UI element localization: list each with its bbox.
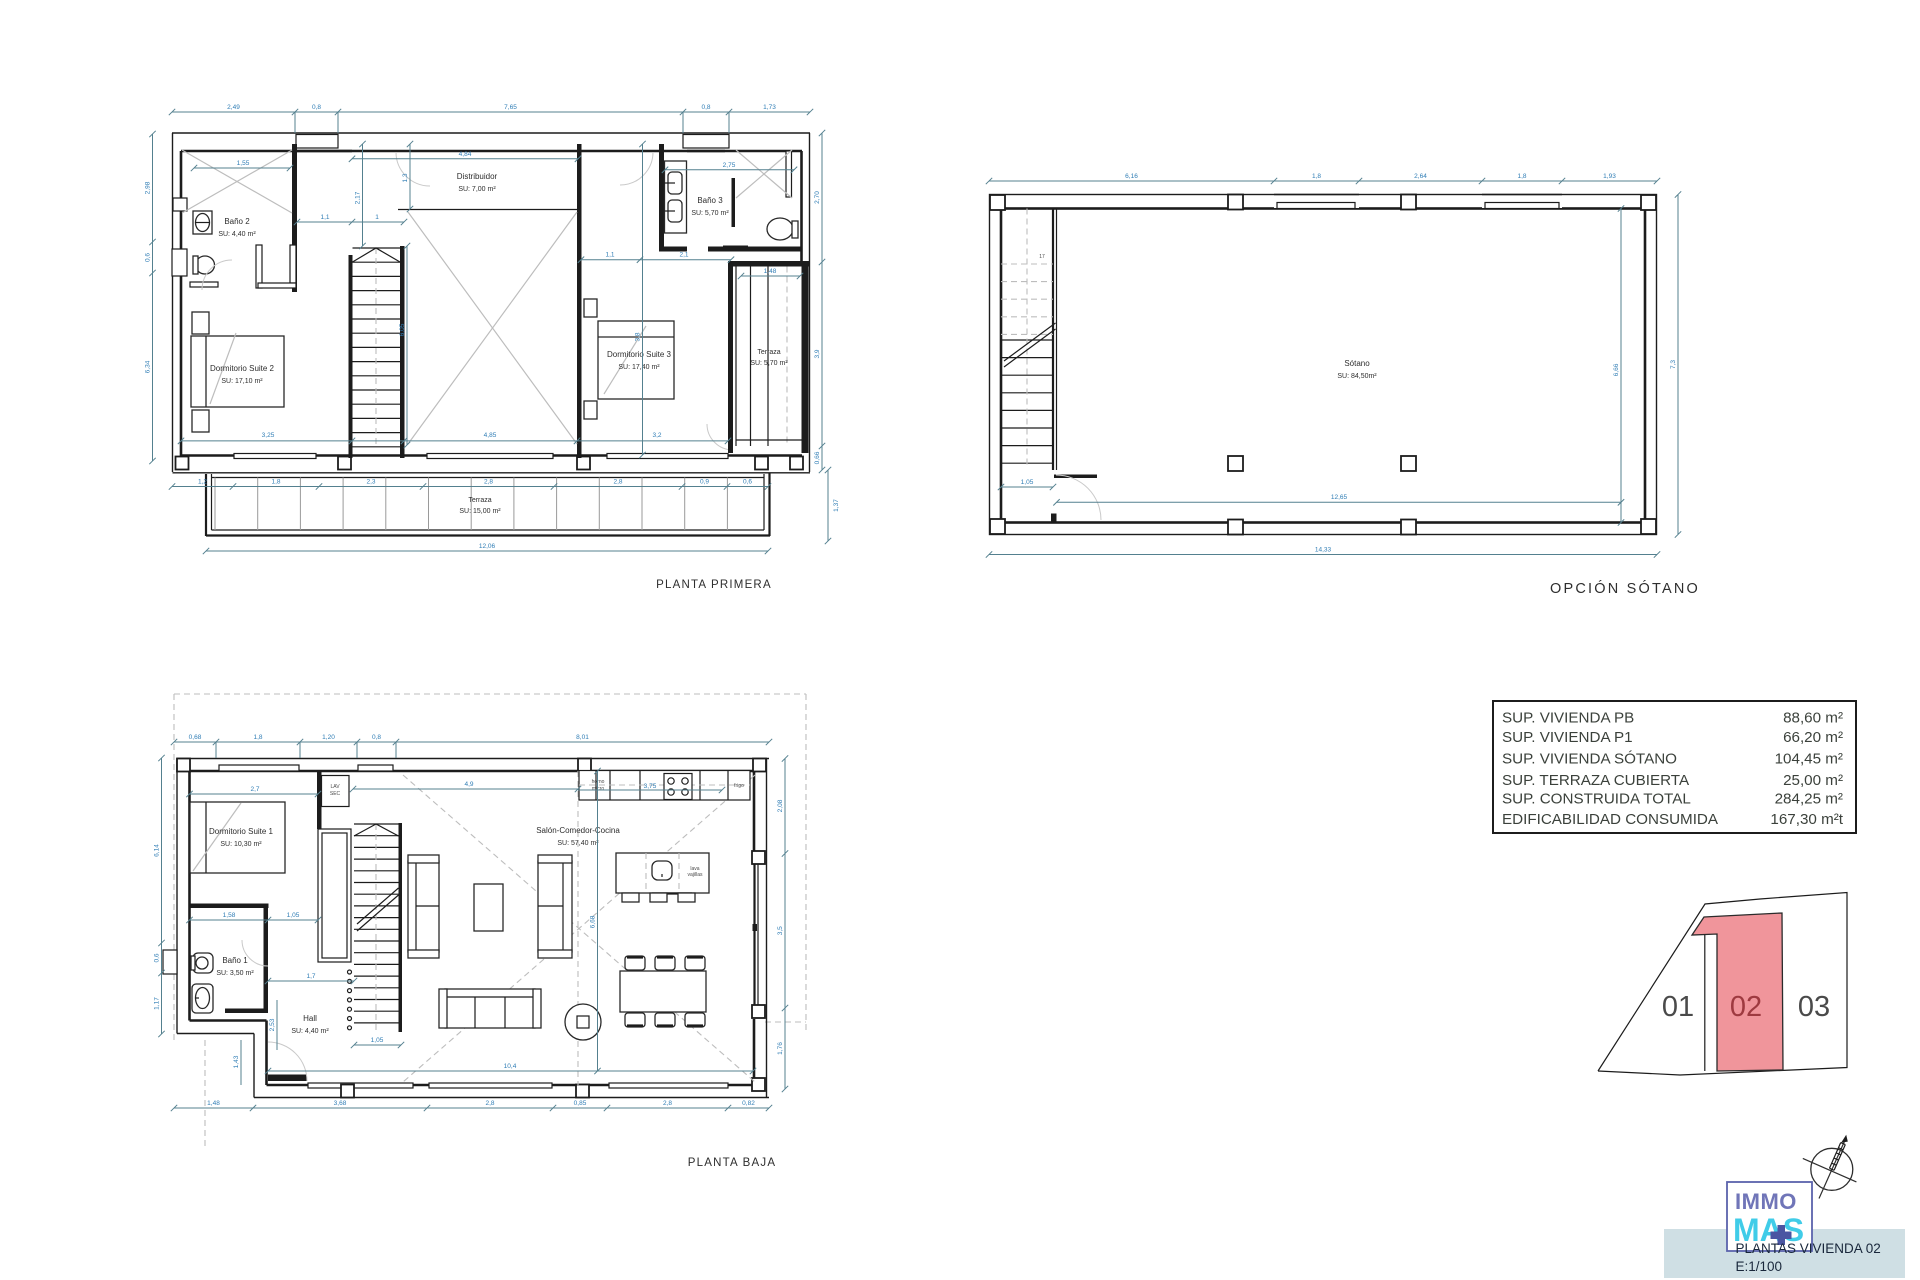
svg-text:3,68: 3,68 bbox=[334, 1100, 347, 1107]
svg-text:PLANTAS VIVIENDA 02: PLANTAS VIVIENDA 02 bbox=[1736, 1241, 1881, 1256]
svg-text:4,9: 4,9 bbox=[464, 781, 473, 788]
svg-text:6,14: 6,14 bbox=[154, 844, 161, 857]
svg-text:SU: 3,50 m²: SU: 3,50 m² bbox=[216, 970, 254, 977]
svg-text:Sótano: Sótano bbox=[1344, 359, 1370, 368]
svg-text:2,53: 2,53 bbox=[269, 1018, 276, 1031]
svg-text:Hall: Hall bbox=[303, 1014, 317, 1023]
svg-text:6,66: 6,66 bbox=[1613, 363, 1620, 376]
svg-text:66,20 m²: 66,20 m² bbox=[1783, 729, 1843, 746]
svg-text:vajillas: vajillas bbox=[687, 872, 703, 878]
svg-text:frigo: frigo bbox=[734, 783, 744, 789]
svg-text:1: 1 bbox=[375, 214, 379, 221]
svg-text:10,4: 10,4 bbox=[504, 1063, 517, 1070]
svg-text:3,9: 3,9 bbox=[814, 349, 821, 358]
svg-text:micro: micro bbox=[592, 786, 604, 792]
svg-text:SU: 84,50m²: SU: 84,50m² bbox=[1337, 373, 1377, 380]
svg-text:Dormitorio Suite 2: Dormitorio Suite 2 bbox=[210, 364, 275, 373]
svg-text:SU: 5,70 m²: SU: 5,70 m² bbox=[691, 210, 729, 217]
svg-text:1,7: 1,7 bbox=[306, 973, 315, 980]
svg-text:4,84: 4,84 bbox=[459, 151, 472, 158]
svg-text:12,06: 12,06 bbox=[479, 543, 496, 550]
svg-text:0,68: 0,68 bbox=[189, 734, 202, 741]
svg-text:2,7: 2,7 bbox=[250, 786, 259, 793]
svg-text:Distribuidor: Distribuidor bbox=[457, 172, 498, 181]
svg-text:17: 17 bbox=[1039, 254, 1045, 260]
svg-text:8,01: 8,01 bbox=[576, 734, 589, 741]
svg-text:12,65: 12,65 bbox=[1331, 494, 1348, 501]
svg-text:1,2: 1,2 bbox=[198, 479, 207, 486]
svg-text:6,05: 6,05 bbox=[399, 323, 406, 336]
svg-text:Dormitorio Suite 1: Dormitorio Suite 1 bbox=[209, 827, 274, 836]
svg-text:IMMO: IMMO bbox=[1735, 1189, 1797, 1214]
svg-text:Baño 1: Baño 1 bbox=[222, 956, 248, 965]
svg-text:1,05: 1,05 bbox=[1021, 479, 1034, 486]
svg-text:0,85: 0,85 bbox=[574, 1100, 587, 1107]
svg-text:PLANTA PRIMERA: PLANTA PRIMERA bbox=[656, 579, 772, 591]
svg-text:1,8: 1,8 bbox=[1517, 173, 1526, 180]
svg-text:1,48: 1,48 bbox=[764, 268, 777, 275]
svg-text:0,6: 0,6 bbox=[154, 953, 161, 962]
svg-text:02: 02 bbox=[1730, 991, 1762, 1023]
svg-text:SU: 15,00 m²: SU: 15,00 m² bbox=[459, 508, 501, 515]
svg-text:7,65: 7,65 bbox=[504, 104, 517, 111]
svg-text:0,82: 0,82 bbox=[742, 1100, 755, 1107]
svg-text:SU: 17,40 m²: SU: 17,40 m² bbox=[618, 364, 660, 371]
svg-text:Terraza: Terraza bbox=[757, 349, 780, 356]
svg-text:1,93: 1,93 bbox=[1603, 173, 1616, 180]
svg-text:1,8: 1,8 bbox=[271, 479, 280, 486]
svg-text:Salón-Comedor-Cocina: Salón-Comedor-Cocina bbox=[536, 826, 620, 835]
svg-text:SU: 57,40 m²: SU: 57,40 m² bbox=[557, 840, 599, 847]
svg-text:1,48: 1,48 bbox=[207, 1100, 220, 1107]
svg-text:Terraza: Terraza bbox=[468, 497, 491, 504]
svg-text:0,6: 0,6 bbox=[145, 253, 152, 262]
svg-text:4,85: 4,85 bbox=[484, 432, 497, 439]
svg-text:SU: 5,70 m²: SU: 5,70 m² bbox=[750, 360, 788, 367]
svg-text:104,45 m²: 104,45 m² bbox=[1775, 751, 1843, 768]
svg-text:2,98: 2,98 bbox=[145, 181, 152, 194]
svg-text:1,1: 1,1 bbox=[605, 252, 614, 259]
svg-text:1,3: 1,3 bbox=[402, 173, 409, 182]
svg-text:1,1: 1,1 bbox=[320, 214, 329, 221]
svg-text:1,05: 1,05 bbox=[371, 1037, 384, 1044]
svg-text:2,8: 2,8 bbox=[663, 1100, 672, 1107]
svg-text:6,16: 6,16 bbox=[1125, 173, 1138, 180]
svg-text:2,17: 2,17 bbox=[355, 191, 362, 204]
svg-text:2,49: 2,49 bbox=[227, 104, 240, 111]
svg-text:Baño 3: Baño 3 bbox=[697, 196, 723, 205]
svg-text:0,8: 0,8 bbox=[372, 734, 381, 741]
svg-text:1,17: 1,17 bbox=[154, 997, 161, 1010]
svg-text:SUP. TERRAZA CUBIERTA: SUP. TERRAZA CUBIERTA bbox=[1502, 772, 1690, 789]
svg-text:284,25 m²: 284,25 m² bbox=[1775, 791, 1843, 808]
svg-text:0,6: 0,6 bbox=[743, 479, 752, 486]
svg-text:3,75: 3,75 bbox=[644, 783, 657, 790]
svg-text:SU: 7,00 m²: SU: 7,00 m² bbox=[458, 186, 496, 193]
svg-text:SEC: SEC bbox=[330, 791, 341, 797]
svg-text:2,8: 2,8 bbox=[484, 479, 493, 486]
svg-text:horno: horno bbox=[592, 779, 605, 785]
svg-text:1,43: 1,43 bbox=[233, 1055, 240, 1068]
svg-text:OPCIÓN SÓTANO: OPCIÓN SÓTANO bbox=[1550, 580, 1700, 597]
svg-text:LAV: LAV bbox=[330, 784, 340, 790]
svg-text:2,70: 2,70 bbox=[814, 191, 821, 204]
svg-text:1,58: 1,58 bbox=[223, 912, 236, 919]
svg-text:6,68: 6,68 bbox=[590, 915, 597, 928]
svg-text:SUP. VIVIENDA SÓTANO: SUP. VIVIENDA SÓTANO bbox=[1502, 751, 1677, 768]
svg-text:0,8: 0,8 bbox=[312, 104, 321, 111]
svg-text:25,00 m²: 25,00 m² bbox=[1783, 772, 1843, 789]
svg-text:0,9: 0,9 bbox=[700, 479, 709, 486]
svg-text:SU: 10,30 m²: SU: 10,30 m² bbox=[220, 841, 262, 848]
svg-text:1,76: 1,76 bbox=[777, 1042, 784, 1055]
svg-text:3,5: 3,5 bbox=[777, 926, 784, 935]
svg-text:3,25: 3,25 bbox=[262, 432, 275, 439]
svg-text:1,55: 1,55 bbox=[237, 160, 250, 167]
svg-text:SUP. VIVIENDA PB: SUP. VIVIENDA PB bbox=[1502, 710, 1634, 727]
svg-text:2,64: 2,64 bbox=[1414, 173, 1427, 180]
svg-text:1,05: 1,05 bbox=[287, 912, 300, 919]
svg-text:14,33: 14,33 bbox=[1315, 547, 1332, 554]
svg-text:1,73: 1,73 bbox=[763, 104, 776, 111]
svg-text:2,08: 2,08 bbox=[777, 799, 784, 812]
svg-text:SUP. VIVIENDA P1: SUP. VIVIENDA P1 bbox=[1502, 729, 1633, 746]
svg-text:Baño 2: Baño 2 bbox=[224, 217, 250, 226]
svg-text:1,20: 1,20 bbox=[322, 734, 335, 741]
svg-text:167,30 m²t: 167,30 m²t bbox=[1770, 811, 1843, 828]
svg-text:2,1: 2,1 bbox=[679, 252, 688, 259]
svg-text:SU: 17,10 m²: SU: 17,10 m² bbox=[221, 378, 263, 385]
svg-text:3,8: 3,8 bbox=[635, 332, 642, 341]
svg-text:EDIFICABILIDAD CONSUMIDA: EDIFICABILIDAD CONSUMIDA bbox=[1502, 811, 1719, 828]
svg-text:2,75: 2,75 bbox=[723, 162, 736, 169]
svg-text:2,8: 2,8 bbox=[485, 1100, 494, 1107]
svg-text:SU: 4,40 m²: SU: 4,40 m² bbox=[291, 1028, 329, 1035]
svg-text:01: 01 bbox=[1662, 991, 1694, 1023]
svg-text:2,8: 2,8 bbox=[613, 479, 622, 486]
svg-text:0,8: 0,8 bbox=[701, 104, 710, 111]
svg-text:3,2: 3,2 bbox=[652, 432, 661, 439]
svg-text:1,37: 1,37 bbox=[833, 499, 840, 512]
svg-text:7,3: 7,3 bbox=[1670, 360, 1677, 369]
svg-text:SU: 4,40 m²: SU: 4,40 m² bbox=[218, 231, 256, 238]
svg-text:Dormitorio Suite 3: Dormitorio Suite 3 bbox=[607, 350, 672, 359]
svg-text:1,8: 1,8 bbox=[1312, 173, 1321, 180]
svg-text:E:1/100: E:1/100 bbox=[1736, 1259, 1783, 1274]
svg-text:6,34: 6,34 bbox=[145, 360, 152, 373]
svg-text:0,66: 0,66 bbox=[814, 451, 821, 464]
svg-text:03: 03 bbox=[1798, 991, 1830, 1023]
svg-text:2,3: 2,3 bbox=[366, 479, 375, 486]
svg-text:1,8: 1,8 bbox=[253, 734, 262, 741]
svg-text:88,60 m²: 88,60 m² bbox=[1783, 710, 1843, 727]
svg-text:PLANTA BAJA: PLANTA BAJA bbox=[688, 1157, 776, 1169]
svg-text:SUP. CONSTRUIDA TOTAL: SUP. CONSTRUIDA TOTAL bbox=[1502, 791, 1691, 808]
